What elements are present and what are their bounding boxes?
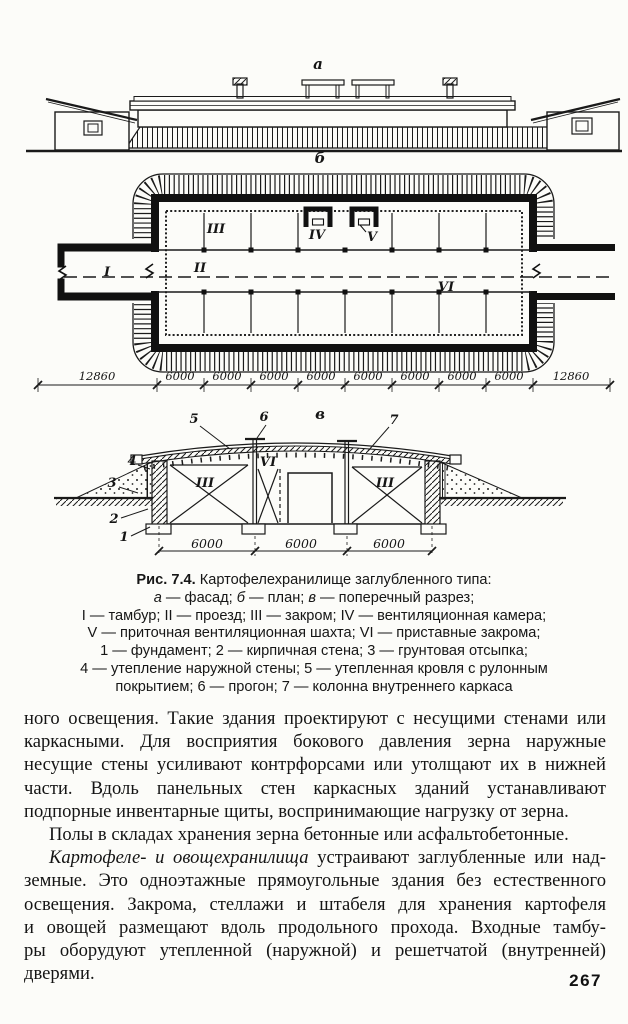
dim-value: 6000 xyxy=(285,536,317,551)
body-text-line: Полы в складах хранения зерна бетонные и… xyxy=(24,823,606,846)
section-label-bin-left: III xyxy=(195,476,215,491)
body-text-line: земные. Это одноэтажные прямоугольные зд… xyxy=(24,869,606,892)
section-walls xyxy=(147,461,445,525)
right-wall xyxy=(425,461,440,525)
right-embankment xyxy=(440,462,522,498)
body-text-line: каркасными. Для восприятия бокового давл… xyxy=(24,730,606,753)
body-text: ного освещения. Такие здания проектируют… xyxy=(24,707,606,985)
facade-wall xyxy=(138,110,507,127)
dim-value: 12860 xyxy=(79,369,116,383)
plan-label-side-bins: VI xyxy=(438,280,455,295)
plan-label-vent-chamber: IV xyxy=(308,228,327,243)
dim-value: 6000 xyxy=(306,369,335,383)
caption-title-line: Рис. 7.4. Картофелехранилище заглубленно… xyxy=(14,572,614,590)
dim-value: 6000 xyxy=(447,369,476,383)
caption-text: — поперечный разрез; xyxy=(316,590,474,606)
caption-line: V — приточная вентиляционная шахта; VI —… xyxy=(14,625,614,643)
body-text-line: и овощей размещают вдоль продольного про… xyxy=(24,916,606,939)
caption-view-b: б xyxy=(237,590,245,606)
dim-value: 6000 xyxy=(353,369,382,383)
dim-value: 6000 xyxy=(165,369,194,383)
body-text-line: несущие стены усиливают контрфорсами или… xyxy=(24,753,606,776)
right-eave xyxy=(450,455,461,464)
caption-line: 4 — утепление наружной стены; 5 — утепле… xyxy=(14,661,614,679)
body-text-line: освещения. Закрома, стеллажи и штабеля д… xyxy=(24,893,606,916)
dim-value: 6000 xyxy=(259,369,288,383)
left-entrance-block xyxy=(55,112,129,150)
left-wall xyxy=(152,461,167,525)
body-text-line: Картофеле- и овощехранилища устраивают з… xyxy=(24,846,606,869)
callout-2: 2 xyxy=(108,512,118,527)
dim-value: 6000 xyxy=(212,369,241,383)
body-text-line: ного освещения. Такие здания проектируют… xyxy=(24,707,606,730)
facade-view-label: а xyxy=(313,55,323,73)
vent-hood xyxy=(302,80,344,98)
caption-text: — фасад; xyxy=(162,590,237,606)
caption-view-v: в xyxy=(308,590,316,606)
body-text-line: дверями. xyxy=(24,962,606,985)
vent-chimney xyxy=(443,78,457,98)
body-text-span: устраивают заглубленные или над- xyxy=(309,847,606,868)
figure-number: Рис. 7.4. xyxy=(136,572,195,588)
body-text-line: части. Вдоль панельных стен каркасных зд… xyxy=(24,777,606,800)
callout-5: 5 xyxy=(189,412,198,427)
section-roof xyxy=(131,443,461,468)
plan-building xyxy=(148,198,540,348)
page-number: 267 xyxy=(569,971,602,991)
section-view-label: в xyxy=(315,405,325,423)
section-drawing: в xyxy=(0,405,628,568)
callout-4: 4 xyxy=(127,454,136,469)
plan-label-bin: III xyxy=(206,222,226,237)
body-text-line: ры оборудуют утепленной (наружной) и реш… xyxy=(24,939,606,962)
facade-roof-edge xyxy=(134,97,511,102)
facade-linework xyxy=(26,78,622,151)
drive-gate xyxy=(288,473,332,523)
callout-6: 6 xyxy=(259,410,268,425)
book-page: а xyxy=(0,0,628,1024)
dim-value: 6000 xyxy=(191,536,223,551)
section-label-side-bin: VI xyxy=(260,455,277,470)
plan-view-label: б xyxy=(315,149,326,165)
caption-text: — план; xyxy=(245,590,308,606)
caption-line: I — тамбур; II — проезд; III — закром; I… xyxy=(14,608,614,626)
section-label-bin-right: III xyxy=(375,476,395,491)
plan-label-tambour: I xyxy=(103,265,111,280)
figure-title: Картофелехранилище заглубленного типа: xyxy=(196,572,492,588)
figure-caption: Рис. 7.4. Картофелехранилище заглубленно… xyxy=(14,572,614,697)
body-text-line: подпорные инвентарные щиты, воспринимающ… xyxy=(24,800,606,823)
callout-3: 3 xyxy=(107,476,116,491)
plan-label-drive: II xyxy=(193,261,207,276)
vent-hood xyxy=(352,80,394,98)
caption-line: покрытием; 6 — прогон; 7 — колонна внутр… xyxy=(14,679,614,697)
facade-drawing: а xyxy=(0,55,628,165)
body-italic-lead: Картофеле- и овощехранилища xyxy=(49,847,309,868)
callout-7: 7 xyxy=(389,413,398,428)
base-plinth xyxy=(126,127,566,148)
section-foundations xyxy=(146,524,446,534)
caption-views-line: а — фасад; б — план; в — поперечный разр… xyxy=(14,590,614,608)
dim-value: 6000 xyxy=(373,536,405,551)
caption-view-a: а xyxy=(154,590,162,606)
dim-value: 12860 xyxy=(553,369,590,383)
section-dimension-labels: 6000 6000 6000 xyxy=(191,536,405,551)
section-bins xyxy=(170,465,422,523)
dim-value: 6000 xyxy=(400,369,429,383)
callout-1: 1 xyxy=(119,530,128,545)
plan-drawing: I II III IV V VI xyxy=(0,165,628,400)
dim-value: 6000 xyxy=(494,369,523,383)
right-wall-insulation xyxy=(440,463,445,499)
caption-line: 1 — фундамент; 2 — кирпичная стена; 3 — … xyxy=(14,643,614,661)
vent-chimney xyxy=(233,78,247,98)
